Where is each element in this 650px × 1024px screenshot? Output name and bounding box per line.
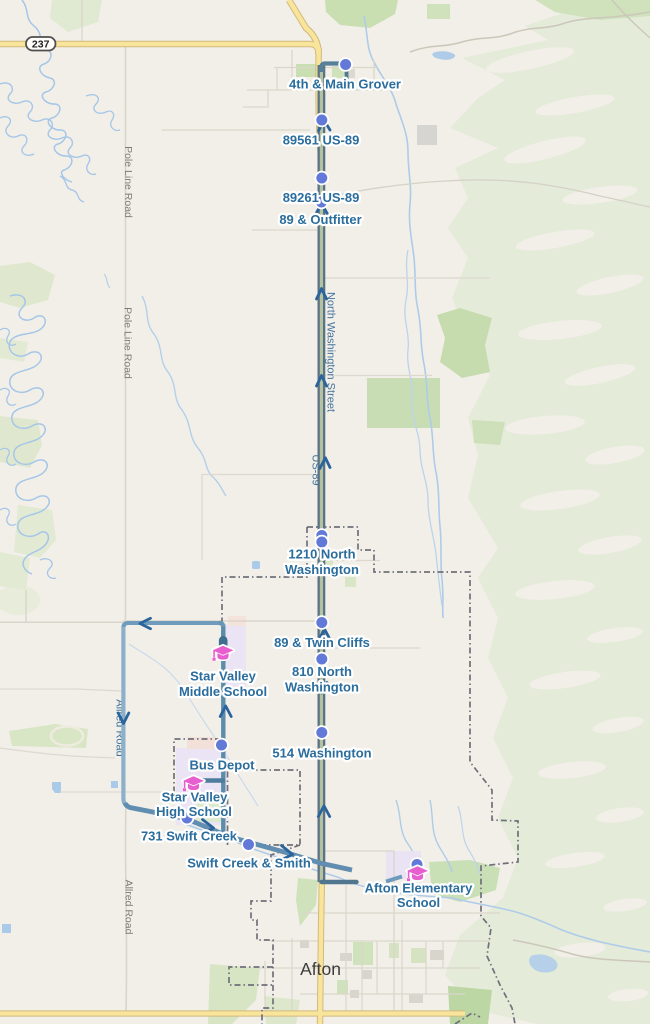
svg-text:731 Swift Creek: 731 Swift Creek	[141, 829, 238, 844]
svg-text:810 North: 810 North	[292, 664, 352, 679]
svg-text:Pole Line Road: Pole Line Road	[122, 146, 134, 218]
svg-text:89561 US-89: 89561 US-89	[283, 133, 360, 148]
svg-text:237: 237	[32, 39, 50, 51]
svg-text:514 Washington: 514 Washington	[272, 746, 371, 761]
svg-text:School: School	[397, 895, 440, 910]
svg-text:Washington: Washington	[285, 680, 359, 695]
svg-text:89 & Outfitter: 89 & Outfitter	[279, 212, 361, 227]
svg-text:Allred Road: Allred Road	[123, 880, 135, 935]
svg-text:Star Valley: Star Valley	[190, 669, 257, 684]
svg-text:Afton Elementary: Afton Elementary	[365, 881, 473, 896]
svg-text:Middle School: Middle School	[179, 684, 267, 699]
svg-text:4th & Main Grover: 4th & Main Grover	[289, 77, 401, 92]
svg-text:Star Valley: Star Valley	[162, 790, 229, 805]
svg-text:Pole Line Road: Pole Line Road	[122, 307, 134, 379]
svg-text:High School: High School	[156, 804, 232, 819]
svg-text:1210 North: 1210 North	[288, 547, 355, 562]
svg-text:Bus Depot: Bus Depot	[190, 758, 256, 773]
svg-text:Swift Creek & Smith: Swift Creek & Smith	[187, 856, 311, 871]
svg-text:Afton: Afton	[300, 959, 341, 979]
svg-text:89261 US-89: 89261 US-89	[283, 190, 360, 205]
svg-text:89 & Twin Cliffs: 89 & Twin Cliffs	[274, 635, 370, 650]
svg-text:North Washington Street: North Washington Street	[325, 292, 337, 412]
svg-text:Washington: Washington	[285, 562, 359, 577]
